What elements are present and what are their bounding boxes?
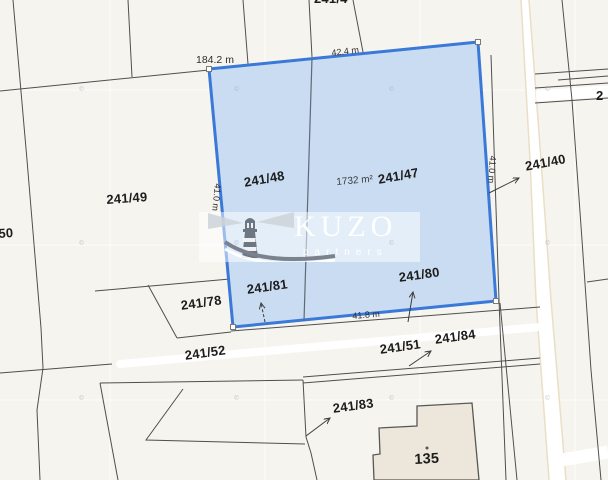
boundary-line bbox=[0, 70, 209, 91]
copyright-tile: © bbox=[389, 87, 394, 93]
building-135 bbox=[373, 403, 479, 480]
vertex-marker bbox=[494, 299, 499, 304]
leader-arrow-241-83 bbox=[306, 418, 330, 436]
boundary-line bbox=[303, 364, 540, 383]
copyright-tile: © bbox=[79, 396, 84, 402]
building-label-135: 135 bbox=[414, 452, 440, 468]
vertex-marker bbox=[207, 67, 212, 72]
vertex-marker bbox=[231, 325, 236, 330]
copyright-tile: © bbox=[234, 396, 239, 402]
boundary-line bbox=[146, 389, 305, 444]
parcel-label-clipped-right: 2 bbox=[596, 89, 603, 102]
boundary-line bbox=[177, 332, 231, 338]
copyright-tile: © bbox=[545, 241, 550, 247]
watermark-subtitle: partners bbox=[303, 248, 388, 258]
copyright-tile: © bbox=[389, 241, 394, 247]
watermark-brand: KUZO bbox=[294, 212, 397, 242]
boundary-line bbox=[37, 368, 43, 480]
copyright-tile: © bbox=[389, 396, 394, 402]
parcel-label-241-49: 241/49 bbox=[106, 190, 148, 206]
copyright-tile: © bbox=[545, 87, 550, 93]
road-bottom-band bbox=[120, 327, 540, 364]
boundary-line bbox=[0, 364, 112, 373]
boundary-line bbox=[128, 0, 132, 77]
copyright-tile: © bbox=[545, 396, 550, 402]
measurement-left-edge: 41.0 m bbox=[210, 183, 222, 211]
road-bottomright-band bbox=[556, 452, 608, 461]
boundary-line bbox=[95, 279, 230, 291]
boundary-line bbox=[13, 0, 43, 368]
measurement-right-edge: 41.0 m bbox=[486, 155, 497, 183]
copyright-tile: © bbox=[79, 87, 84, 93]
boundary-line bbox=[303, 358, 540, 377]
boundary-line bbox=[100, 380, 303, 383]
boundary-line bbox=[587, 279, 608, 282]
watermark-band: KUZO partners bbox=[199, 212, 420, 262]
boundary-line bbox=[303, 380, 317, 480]
boundary-line bbox=[309, 0, 312, 57]
map-canvas[interactable]: KUZO partners © © © © © © © © © © © © 18… bbox=[0, 0, 608, 480]
vertex-marker bbox=[476, 40, 481, 45]
copyright-tile: © bbox=[79, 241, 84, 247]
copyright-tile: © bbox=[234, 241, 239, 247]
copyright-tile: © bbox=[234, 87, 239, 93]
parcel-label-clipped-top: 241/4 bbox=[314, 0, 348, 5]
boundary-line bbox=[148, 285, 177, 338]
building-point bbox=[426, 447, 429, 450]
parcel-label-50: 50 bbox=[0, 226, 14, 240]
boundary-line bbox=[558, 76, 608, 80]
boundary-line bbox=[100, 383, 118, 480]
boundary-line bbox=[243, 0, 248, 64]
boundary-line bbox=[535, 69, 608, 74]
measurement-west-boundary: 184.2 m bbox=[196, 55, 234, 66]
